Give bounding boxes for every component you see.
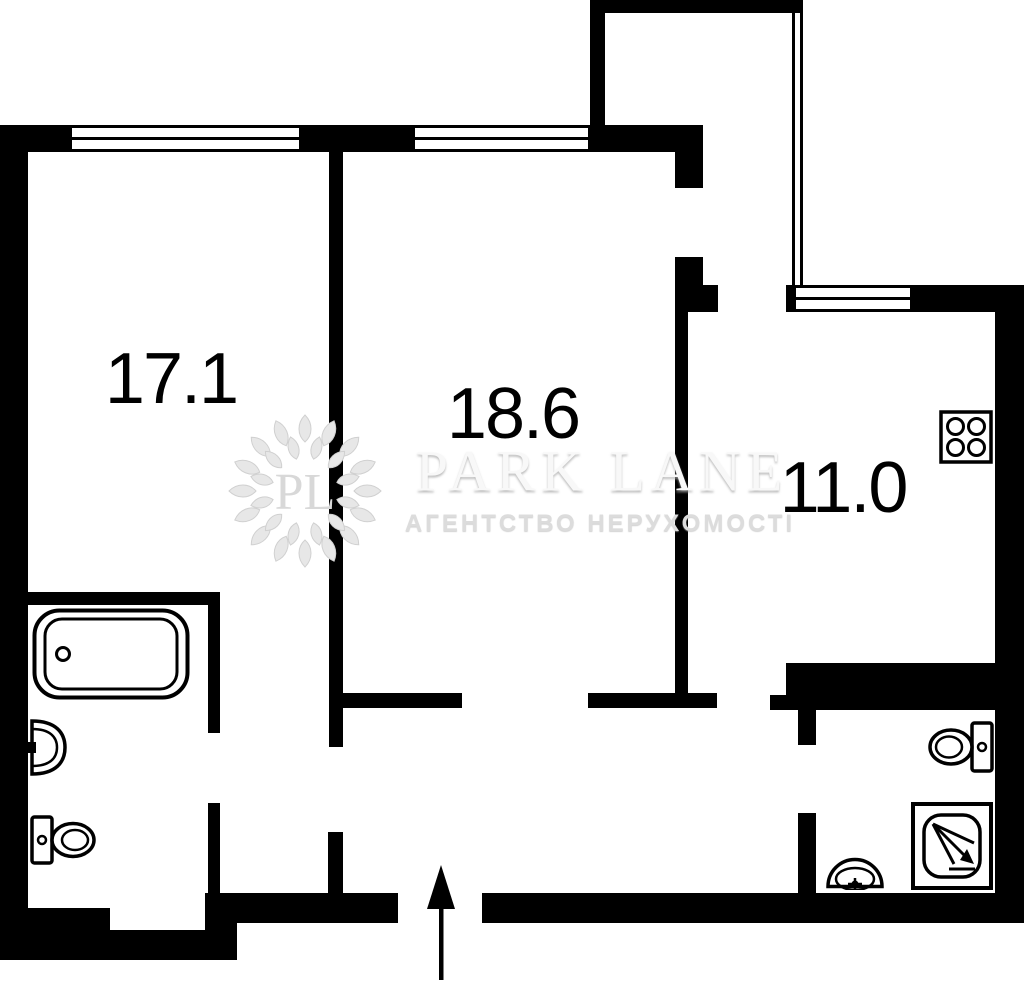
entrance-arrow-icon bbox=[424, 864, 458, 982]
window-kitchen bbox=[796, 285, 910, 312]
wall-exterior-right bbox=[995, 312, 1024, 923]
wall-bathroom2-nub bbox=[770, 695, 786, 710]
sink-icon-2 bbox=[825, 850, 885, 890]
floor-plan: PL PARK LANE АГЕНТСТВО НЕРУХОМОСТІ 17.1 … bbox=[0, 0, 1024, 982]
wall-bathroom1-right-lower bbox=[208, 803, 220, 923]
toilet-icon bbox=[30, 814, 98, 866]
wall-bathroom2-top bbox=[786, 663, 995, 710]
window-living-room bbox=[415, 125, 588, 152]
room-label-kitchen: 11.0 bbox=[780, 452, 907, 524]
wall-kitchen-left-mid bbox=[675, 257, 703, 312]
wall-balcony-top bbox=[590, 0, 803, 13]
bathtub-icon bbox=[32, 608, 190, 700]
watermark-monogram: PL bbox=[275, 464, 336, 521]
shower-icon bbox=[911, 802, 993, 890]
wall-bathroom1-top bbox=[28, 592, 220, 605]
watermark-tagline: АГЕНТСТВО НЕРУХОМОСТІ bbox=[405, 510, 795, 538]
wall-exterior-left bbox=[0, 125, 28, 960]
wall-bathroom2-left-lower bbox=[798, 813, 816, 893]
sink-icon bbox=[28, 718, 70, 778]
room-label-living-room: 18.6 bbox=[447, 378, 579, 450]
wall-exterior-bottom-right bbox=[482, 893, 1024, 923]
wall-bathroom2-left-upper bbox=[798, 710, 816, 745]
toilet-icon-2 bbox=[922, 720, 994, 774]
wall-kitchen-left-upper bbox=[675, 125, 703, 188]
wall-balcony-left bbox=[590, 0, 605, 127]
wall-central bbox=[329, 152, 343, 747]
balcony-glazing bbox=[792, 13, 803, 285]
room-label-bedroom: 17.1 bbox=[105, 343, 237, 415]
wall-living-bottom-left bbox=[343, 693, 462, 708]
wall-bathroom1-right-upper bbox=[208, 592, 220, 733]
stove-icon bbox=[939, 410, 993, 464]
wall-central-stub bbox=[328, 832, 343, 893]
wall-exterior-bottom-step-a bbox=[28, 908, 110, 960]
wall-living-bottom-right bbox=[588, 693, 717, 708]
wall-kitchen-left bbox=[675, 312, 688, 708]
window-bedroom bbox=[72, 125, 299, 152]
wall-kitchen-notch bbox=[703, 285, 718, 312]
watermark-wreath-logo: PL bbox=[224, 410, 386, 572]
